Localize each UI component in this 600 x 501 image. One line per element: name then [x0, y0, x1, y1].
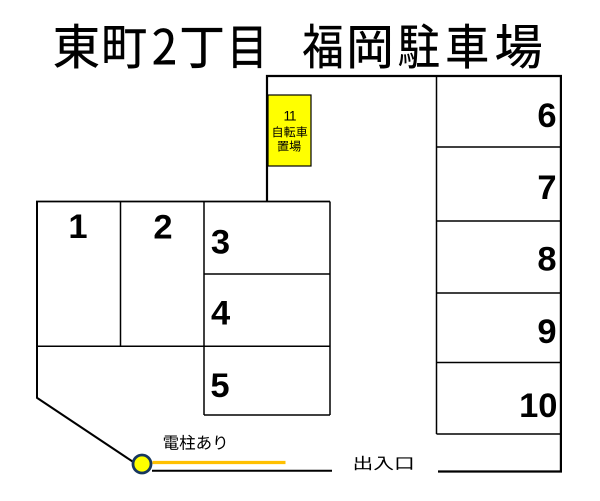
svg-text:8: 8 — [537, 241, 556, 279]
svg-text:6: 6 — [537, 97, 556, 135]
svg-text:9: 9 — [537, 313, 556, 351]
svg-text:3: 3 — [211, 224, 230, 262]
svg-text:10: 10 — [519, 387, 557, 425]
svg-text:1: 1 — [68, 208, 87, 246]
svg-text:11: 11 — [283, 109, 296, 124]
svg-text:2: 2 — [153, 209, 172, 247]
svg-text:4: 4 — [211, 295, 230, 333]
svg-text:5: 5 — [210, 367, 229, 405]
svg-text:7: 7 — [537, 169, 556, 207]
